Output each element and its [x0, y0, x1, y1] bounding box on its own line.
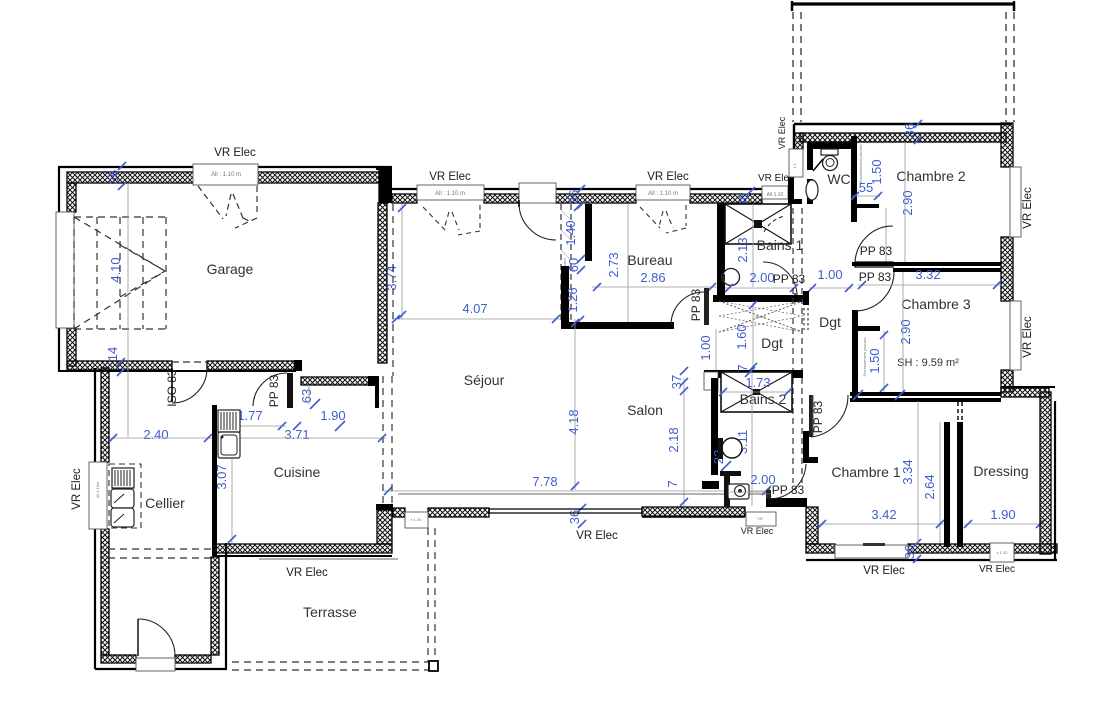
svg-text:2.73: 2.73 [606, 252, 621, 277]
svg-text:1.26: 1.26 [565, 287, 580, 312]
svg-text:3.74: 3.74 [384, 265, 399, 290]
svg-text:VR: VR [757, 516, 763, 521]
svg-text:2.64: 2.64 [922, 474, 937, 499]
svg-text:60: 60 [566, 258, 581, 272]
svg-text:All:1.10m: All:1.10m [95, 481, 100, 498]
svg-text:36: 36 [902, 545, 917, 559]
svg-text:2.13: 2.13 [735, 237, 750, 262]
svg-text:Garage: Garage [207, 261, 254, 277]
svg-text:Chambre 1: Chambre 1 [831, 464, 900, 480]
svg-text:7: 7 [735, 364, 750, 371]
svg-text:Dressing: Dressing [973, 463, 1028, 479]
svg-text:1.50: 1.50 [867, 348, 882, 373]
svg-text:VR Elec: VR Elec [863, 565, 905, 577]
svg-text:1.00: 1.00 [698, 335, 713, 360]
svg-text:All : 1.10 m: All : 1.10 m [648, 191, 678, 197]
svg-text:36: 36 [567, 510, 582, 524]
svg-text:PP 83: PP 83 [689, 288, 703, 321]
svg-text:1.40: 1.40 [563, 220, 578, 245]
svg-text:PP 83: PP 83 [860, 244, 893, 258]
svg-text:2.90: 2.90 [898, 319, 913, 344]
svg-text:VR Elec: VR Elec [1022, 187, 1034, 229]
svg-text:Dgt: Dgt [819, 314, 841, 330]
svg-text:Cuisine: Cuisine [274, 464, 321, 480]
svg-text:36: 36 [902, 123, 917, 137]
svg-text:7.78: 7.78 [532, 474, 557, 489]
svg-text:VR Elec: VR Elec [214, 147, 256, 159]
svg-text:1.60: 1.60 [734, 324, 749, 349]
svg-text:1.77: 1.77 [237, 408, 262, 423]
svg-text:PP 83: PP 83 [859, 270, 892, 284]
svg-text:Chambre 3: Chambre 3 [901, 296, 970, 312]
svg-text:2.00: 2.00 [749, 270, 774, 285]
svg-text:3.71: 3.71 [284, 427, 309, 442]
svg-text:2.40: 2.40 [143, 427, 168, 442]
svg-text:7: 7 [665, 480, 680, 487]
svg-text:Cellier: Cellier [145, 495, 185, 511]
svg-text:VR Elec: VR Elec [741, 526, 774, 536]
svg-text:4.18: 4.18 [566, 409, 581, 434]
svg-text:Bains 1: Bains 1 [757, 237, 804, 253]
svg-text:2.18: 2.18 [666, 427, 681, 452]
svg-text:Bureau: Bureau [627, 252, 672, 268]
svg-text:x 1.30: x 1.30 [411, 517, 423, 522]
svg-text:36: 36 [106, 170, 121, 184]
svg-text:63: 63 [299, 389, 314, 403]
svg-text:1.1: 1.1 [792, 162, 797, 168]
svg-text:1.73: 1.73 [745, 375, 770, 390]
svg-text:4.10: 4.10 [108, 257, 123, 282]
svg-text:PP 83: PP 83 [773, 272, 806, 286]
svg-text:2.86: 2.86 [640, 270, 665, 285]
svg-text:VR Elec: VR Elec [777, 116, 787, 149]
svg-text:VR Elec: VR Elec [979, 564, 1015, 575]
svg-text:1.90: 1.90 [990, 507, 1015, 522]
svg-text:All:1.10: All:1.10 [767, 192, 784, 198]
svg-text:1.50: 1.50 [869, 159, 884, 184]
svg-text:Séjour: Séjour [464, 372, 505, 388]
svg-text:VR Elec: VR Elec [647, 171, 689, 183]
svg-text:Dgt: Dgt [761, 335, 783, 351]
svg-text:WC: WC [827, 171, 850, 187]
svg-text:1.90: 1.90 [320, 408, 345, 423]
svg-text:SH : 9.59 m²: SH : 9.59 m² [897, 357, 959, 369]
svg-text:Salon: Salon [627, 402, 663, 418]
svg-text:(ssss): (ssss) [755, 314, 766, 319]
svg-text:2.00: 2.00 [750, 472, 775, 487]
svg-text:VR Elec: VR Elec [429, 171, 471, 183]
svg-text:14: 14 [105, 347, 120, 361]
svg-text:VR Elec: VR Elec [71, 468, 83, 510]
svg-text:PP 83: PP 83 [267, 374, 281, 407]
svg-text:2.90: 2.90 [900, 190, 915, 215]
svg-text:3.32: 3.32 [915, 267, 940, 282]
svg-text:x 1.30: x 1.30 [997, 550, 1009, 555]
svg-text:Bains 2: Bains 2 [740, 391, 787, 407]
svg-text:3.42: 3.42 [871, 507, 896, 522]
svg-text:VR Elec: VR Elec [286, 567, 328, 579]
svg-text:VR Elec: VR Elec [576, 530, 618, 542]
svg-text:All : 1.10 m: All : 1.10 m [435, 191, 465, 197]
svg-text:4.07: 4.07 [462, 301, 487, 316]
svg-text:Chambre 2: Chambre 2 [896, 168, 965, 184]
svg-text:3.34: 3.34 [900, 459, 915, 484]
svg-text:1.00: 1.00 [817, 267, 842, 282]
svg-text:37: 37 [669, 375, 684, 389]
svg-text:VR Elec: VR Elec [1022, 316, 1034, 358]
svg-text:All : 1.10 m: All : 1.10 m [211, 172, 241, 178]
svg-text:PP 83: PP 83 [811, 400, 825, 433]
svg-text:Encastrement placard: Encastrement placard [858, 145, 863, 184]
svg-text:Terrasse: Terrasse [303, 604, 357, 620]
